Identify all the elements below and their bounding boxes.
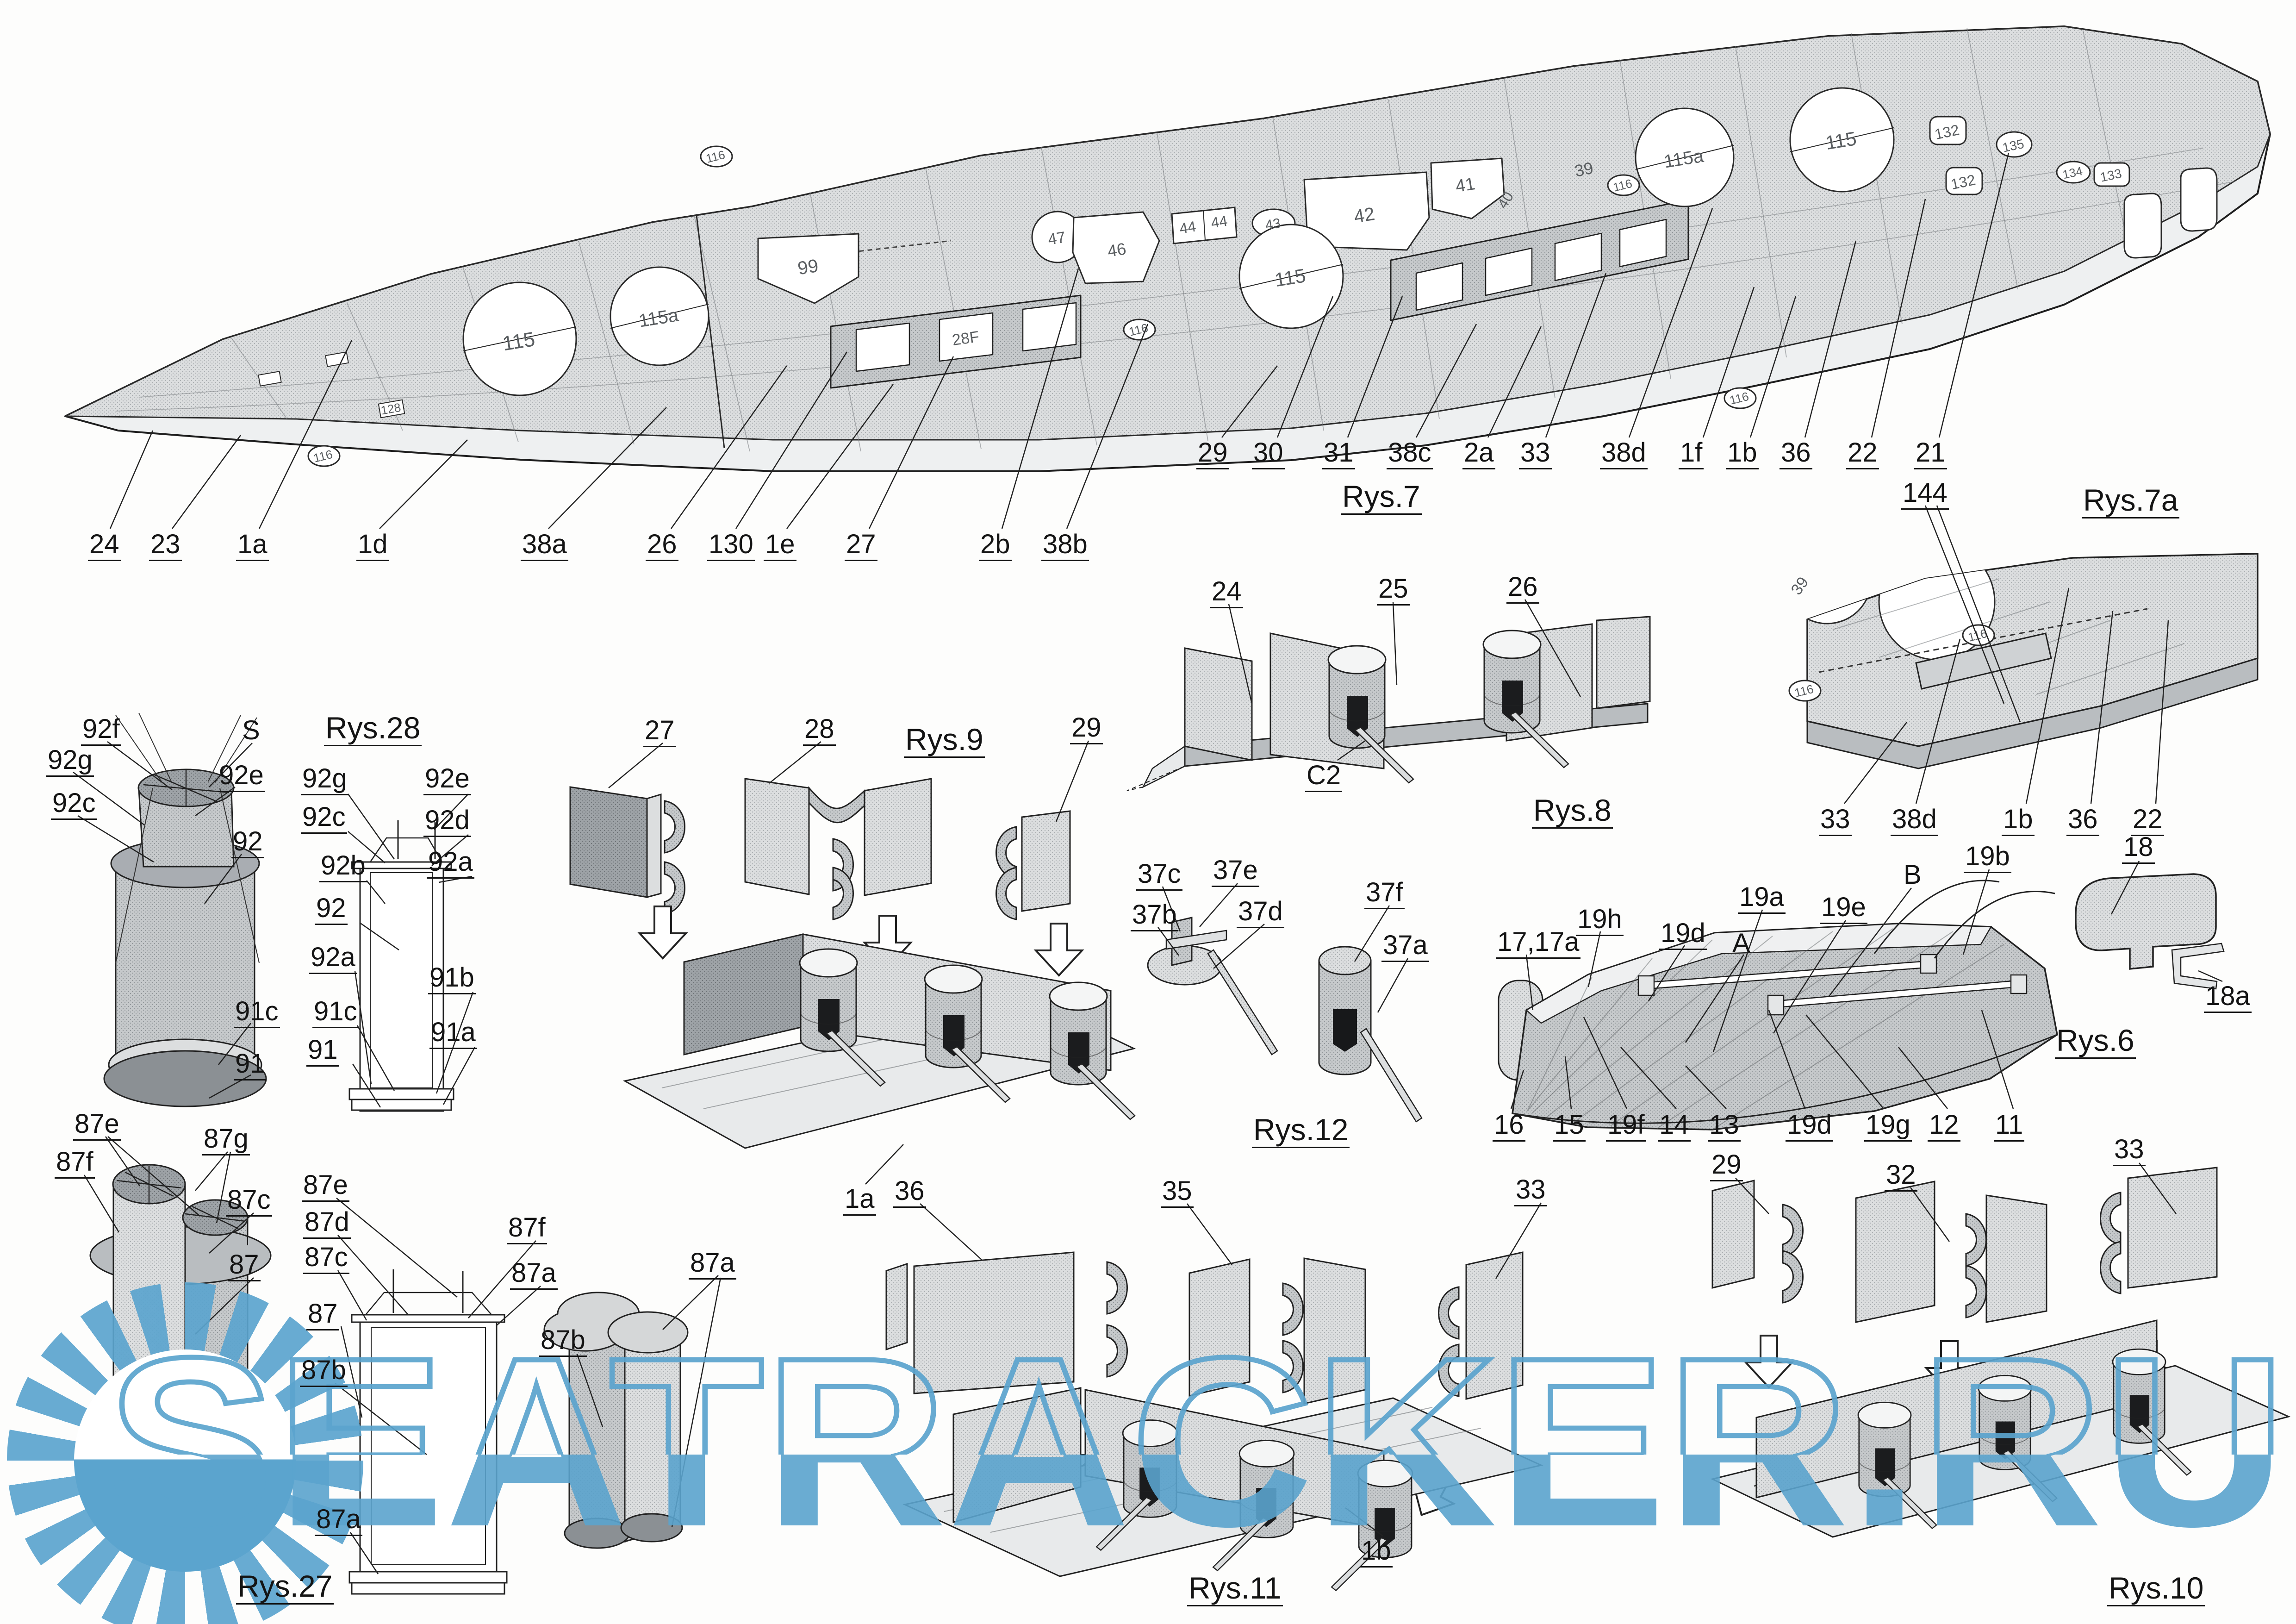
figure-title-rys7: Rys.7 [1341, 481, 1422, 515]
label-s87: 87 [306, 1300, 339, 1330]
label-91c: 91c [234, 998, 280, 1028]
label-r11-33: 33 [1514, 1176, 1547, 1206]
label-r8-24: 24 [1210, 578, 1243, 608]
label-s92a-r: 92a [427, 848, 474, 879]
label-19h: 19h [1576, 906, 1624, 936]
label-144: 144 [1901, 479, 1949, 510]
label-87g: 87g [202, 1125, 250, 1156]
label-87e: 87e [73, 1110, 121, 1141]
label-87f: 87f [55, 1148, 95, 1179]
label-19g: 19g [1864, 1111, 1912, 1142]
label-s92b: 92b [319, 852, 367, 882]
label-130: 130 [707, 531, 755, 561]
label-s87f: 87f [507, 1214, 547, 1244]
label-37e: 37e [1212, 856, 1259, 887]
label-s91a: 91a [429, 1018, 477, 1049]
label-37a: 37a [1381, 931, 1429, 962]
label-r9-27: 27 [643, 717, 676, 747]
label-27: 27 [845, 531, 877, 561]
label-7a-33: 33 [1819, 806, 1852, 836]
figure-title-rys10: Rys.10 [2107, 1572, 2205, 1606]
label-29: 29 [1196, 439, 1229, 469]
label-24: 24 [88, 531, 121, 561]
label-31: 31 [1322, 439, 1355, 469]
label-2a: 2a [1462, 439, 1495, 469]
figure-title-rys11: Rys.11 [1187, 1572, 1283, 1606]
label-s92a-l: 92a [309, 943, 357, 974]
label-19d-top: 19d [1659, 919, 1707, 950]
label-1b: 1b [1726, 439, 1759, 469]
figure-title-rys28: Rys.28 [324, 712, 422, 746]
label-36: 36 [1780, 439, 1812, 469]
label-17-17a: 17,17a [1496, 928, 1580, 959]
label-13: 13 [1708, 1111, 1741, 1142]
label-r10-29: 29 [1710, 1151, 1743, 1181]
label-s87c: 87c [303, 1243, 349, 1274]
label-s92e: 92e [423, 765, 471, 795]
label-37d: 37d [1237, 898, 1284, 928]
label-7a-1b: 1b [2002, 806, 2035, 836]
label-s87e: 87e [302, 1171, 349, 1202]
label-92: 92 [231, 828, 264, 858]
label-33: 33 [1519, 439, 1552, 469]
label-s92d: 92d [423, 806, 471, 837]
label-r11-35: 35 [1161, 1177, 1194, 1208]
label-r9-28: 28 [803, 715, 836, 746]
label-87: 87 [228, 1251, 261, 1281]
label-1d: 1d [356, 531, 389, 561]
label-19b: 19b [1964, 843, 2011, 873]
label-s92c: 92c [301, 803, 347, 834]
label-1a: 1a [236, 531, 269, 561]
label-r11-1b: 1b [1360, 1537, 1393, 1568]
label-38a: 38a [521, 531, 568, 561]
label-r8-26: 26 [1506, 573, 1539, 604]
label-r10-32: 32 [1885, 1161, 1917, 1192]
label-37b: 37b [1131, 901, 1178, 931]
label-38b: 38b [1041, 531, 1089, 561]
label-11: 11 [1994, 1111, 2024, 1142]
label-92g: 92g [46, 746, 94, 777]
figure-title-rys7a: Rys.7a [2082, 484, 2179, 518]
figure-title-rys27: Rys.27 [236, 1570, 334, 1605]
label-37f: 37f [1364, 879, 1405, 909]
label-19f: 19f [1606, 1111, 1646, 1142]
label-22: 22 [1846, 439, 1879, 469]
label-s91: 91 [306, 1036, 339, 1067]
label-r9-29: 29 [1070, 714, 1103, 744]
label-A: A [1731, 930, 1752, 959]
label-B: B [1902, 861, 1923, 890]
label-38c: 38c [1387, 439, 1433, 469]
label-2b: 2b [979, 531, 1012, 561]
label-91: 91 [234, 1050, 267, 1081]
label-c87a: 87a [689, 1249, 736, 1280]
label-38d: 38d [1600, 439, 1648, 469]
figure-title-rys8: Rys.8 [1532, 794, 1613, 829]
label-s91c: 91c [312, 998, 359, 1028]
figure-title-rys6: Rys.6 [2055, 1024, 2136, 1059]
label-16: 16 [1493, 1111, 1525, 1142]
label-r8-C2: C2 [1305, 762, 1342, 792]
label-14: 14 [1658, 1111, 1691, 1142]
label-92e: 92e [218, 762, 265, 792]
label-7a-36: 36 [2066, 806, 2099, 836]
label-19e: 19e [1820, 893, 1867, 924]
label-c87b: 87b [539, 1326, 587, 1357]
label-r11-36: 36 [893, 1177, 926, 1208]
label-s87a-bottom: 87a [315, 1505, 362, 1536]
label-18: 18 [2122, 833, 2155, 864]
label-37c: 37c [1136, 860, 1182, 891]
label-s92: 92 [315, 894, 348, 925]
label-r8-25: 25 [1377, 575, 1410, 606]
label-7a-38d: 38d [1891, 806, 1938, 836]
label-21: 21 [1914, 439, 1947, 469]
label-18a: 18a [2204, 982, 2252, 1013]
label-92f: 92f [81, 715, 121, 746]
label-26: 26 [646, 531, 678, 561]
label-s87a: 87a [510, 1259, 558, 1290]
label-92c: 92c [51, 789, 97, 820]
figure-title-rys12: Rys.12 [1252, 1114, 1350, 1148]
label-s91b: 91b [428, 964, 476, 994]
label-1f: 1f [1679, 439, 1704, 469]
label-s87d: 87d [303, 1208, 351, 1239]
label-1e: 1e [764, 531, 796, 561]
label-30: 30 [1252, 439, 1285, 469]
label-15: 15 [1553, 1111, 1586, 1142]
label-12: 12 [1928, 1111, 1960, 1142]
instruction-sheet: 115 115a 99 47 46 44 44 43 42 41 115 115… [0, 0, 2296, 1624]
label-19d-bot: 19d [1786, 1111, 1833, 1142]
label-23: 23 [149, 531, 182, 561]
figure-title-rys9: Rys.9 [904, 724, 985, 758]
label-s92g: 92g [301, 765, 348, 795]
label-7a-22: 22 [2131, 806, 2164, 836]
label-19a: 19a [1738, 883, 1786, 914]
label-r10-33: 33 [2113, 1136, 2146, 1166]
label-87c: 87c [226, 1186, 272, 1217]
label-S: S [241, 717, 261, 746]
label-s87b: 87b [300, 1356, 348, 1387]
label-r9-1a: 1a [843, 1185, 876, 1216]
